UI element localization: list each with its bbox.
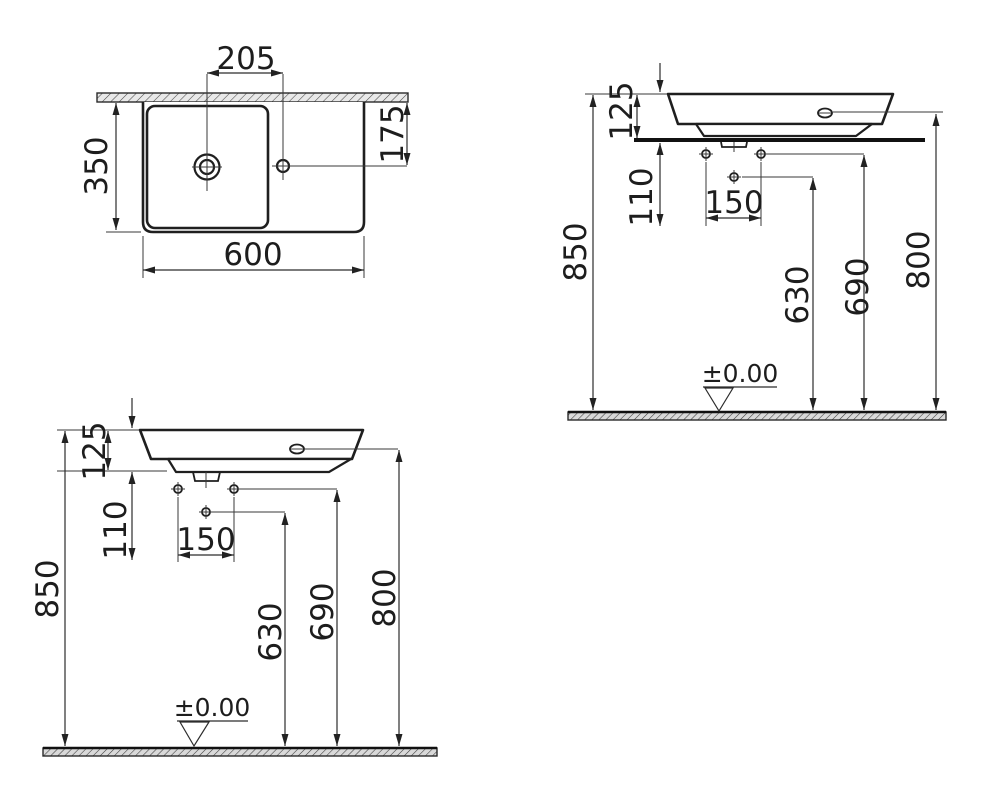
- front-dim-110: 110: [98, 472, 134, 560]
- front-dim-125-label: 125: [77, 421, 113, 480]
- front-dim-110-label: 110: [98, 500, 134, 559]
- side-dim-800-label: 800: [901, 230, 937, 289]
- side-basin-underside: [696, 124, 872, 136]
- front-elevation-view: 125 110 150 850 630 690 800: [30, 398, 437, 756]
- front-dim-800: 800: [367, 450, 403, 746]
- front-drain-fitting: [193, 472, 220, 488]
- plan-dim-205: 205: [207, 41, 283, 77]
- front-dim-630: 630: [253, 513, 289, 746]
- countertop-elevation-view: 125 110 150 850 630 690 800: [558, 63, 946, 420]
- plan-dim-205-label: 205: [216, 41, 275, 77]
- side-dim-110-label: 110: [624, 167, 660, 226]
- side-basin-body: [668, 94, 893, 124]
- side-drain-fitting: [721, 142, 747, 152]
- front-dim-630-label: 630: [253, 602, 289, 661]
- front-dim-850-label: 850: [30, 559, 66, 618]
- plan-dim-350-label: 350: [79, 136, 115, 195]
- front-datum-triangle-icon: [180, 722, 209, 746]
- front-dim-690-label: 690: [305, 582, 341, 641]
- plan-dim-600: 600: [143, 236, 364, 278]
- side-fixing-hole-right: [754, 147, 768, 161]
- side-dim-850-label: 850: [558, 222, 594, 281]
- front-datum-label: ±0.00: [174, 693, 251, 722]
- side-dim-150: 150: [704, 185, 763, 221]
- plan-view: 205 350 600 175: [79, 41, 411, 278]
- side-datum-triangle-icon: [705, 388, 733, 411]
- plan-dim-175: 175: [375, 103, 411, 165]
- front-dim-800-label: 800: [367, 568, 403, 627]
- front-fixing-hole-right: [227, 482, 241, 496]
- front-floor: [43, 748, 437, 756]
- side-dim-800: 800: [901, 114, 937, 410]
- front-basin-body: [140, 430, 363, 459]
- front-dim-690: 690: [305, 490, 341, 746]
- side-fixing-hole-left: [699, 147, 713, 161]
- front-fixing-hole-left: [171, 482, 185, 496]
- side-floor-datum: ±0.00: [702, 359, 779, 411]
- front-dim-150: 150: [176, 522, 235, 558]
- plan-dim-175-label: 175: [375, 104, 411, 163]
- front-basin-underside: [168, 459, 351, 472]
- plan-dim-350: 350: [79, 103, 141, 232]
- side-dim-110: 110: [624, 143, 660, 227]
- side-dim-850: 850: [558, 95, 594, 410]
- washbasin-dimension-drawing: 205 350 600 175: [0, 0, 1000, 797]
- front-dim-850: 850: [30, 431, 66, 746]
- plan-dim-600-label: 600: [223, 237, 282, 273]
- side-dim-125-label: 125: [604, 81, 640, 140]
- side-dim-690: 690: [840, 155, 876, 410]
- front-floor-datum: ±0.00: [174, 693, 251, 746]
- side-dim-630: 630: [780, 178, 816, 410]
- side-dim-630-label: 630: [780, 265, 816, 324]
- side-drain-hole-center: [727, 170, 741, 184]
- side-floor: [568, 412, 946, 420]
- plan-wall-hatch: [97, 93, 408, 102]
- side-dim-125: 125: [604, 81, 640, 140]
- side-dim-150-label: 150: [704, 185, 763, 221]
- technical-drawing-sheet: 205 350 600 175: [0, 0, 1000, 797]
- front-dim-125: 125: [77, 421, 113, 480]
- side-dim-690-label: 690: [840, 257, 876, 316]
- front-dim-150-label: 150: [176, 522, 235, 558]
- side-datum-label: ±0.00: [702, 359, 779, 388]
- front-drain-hole-center: [199, 505, 213, 519]
